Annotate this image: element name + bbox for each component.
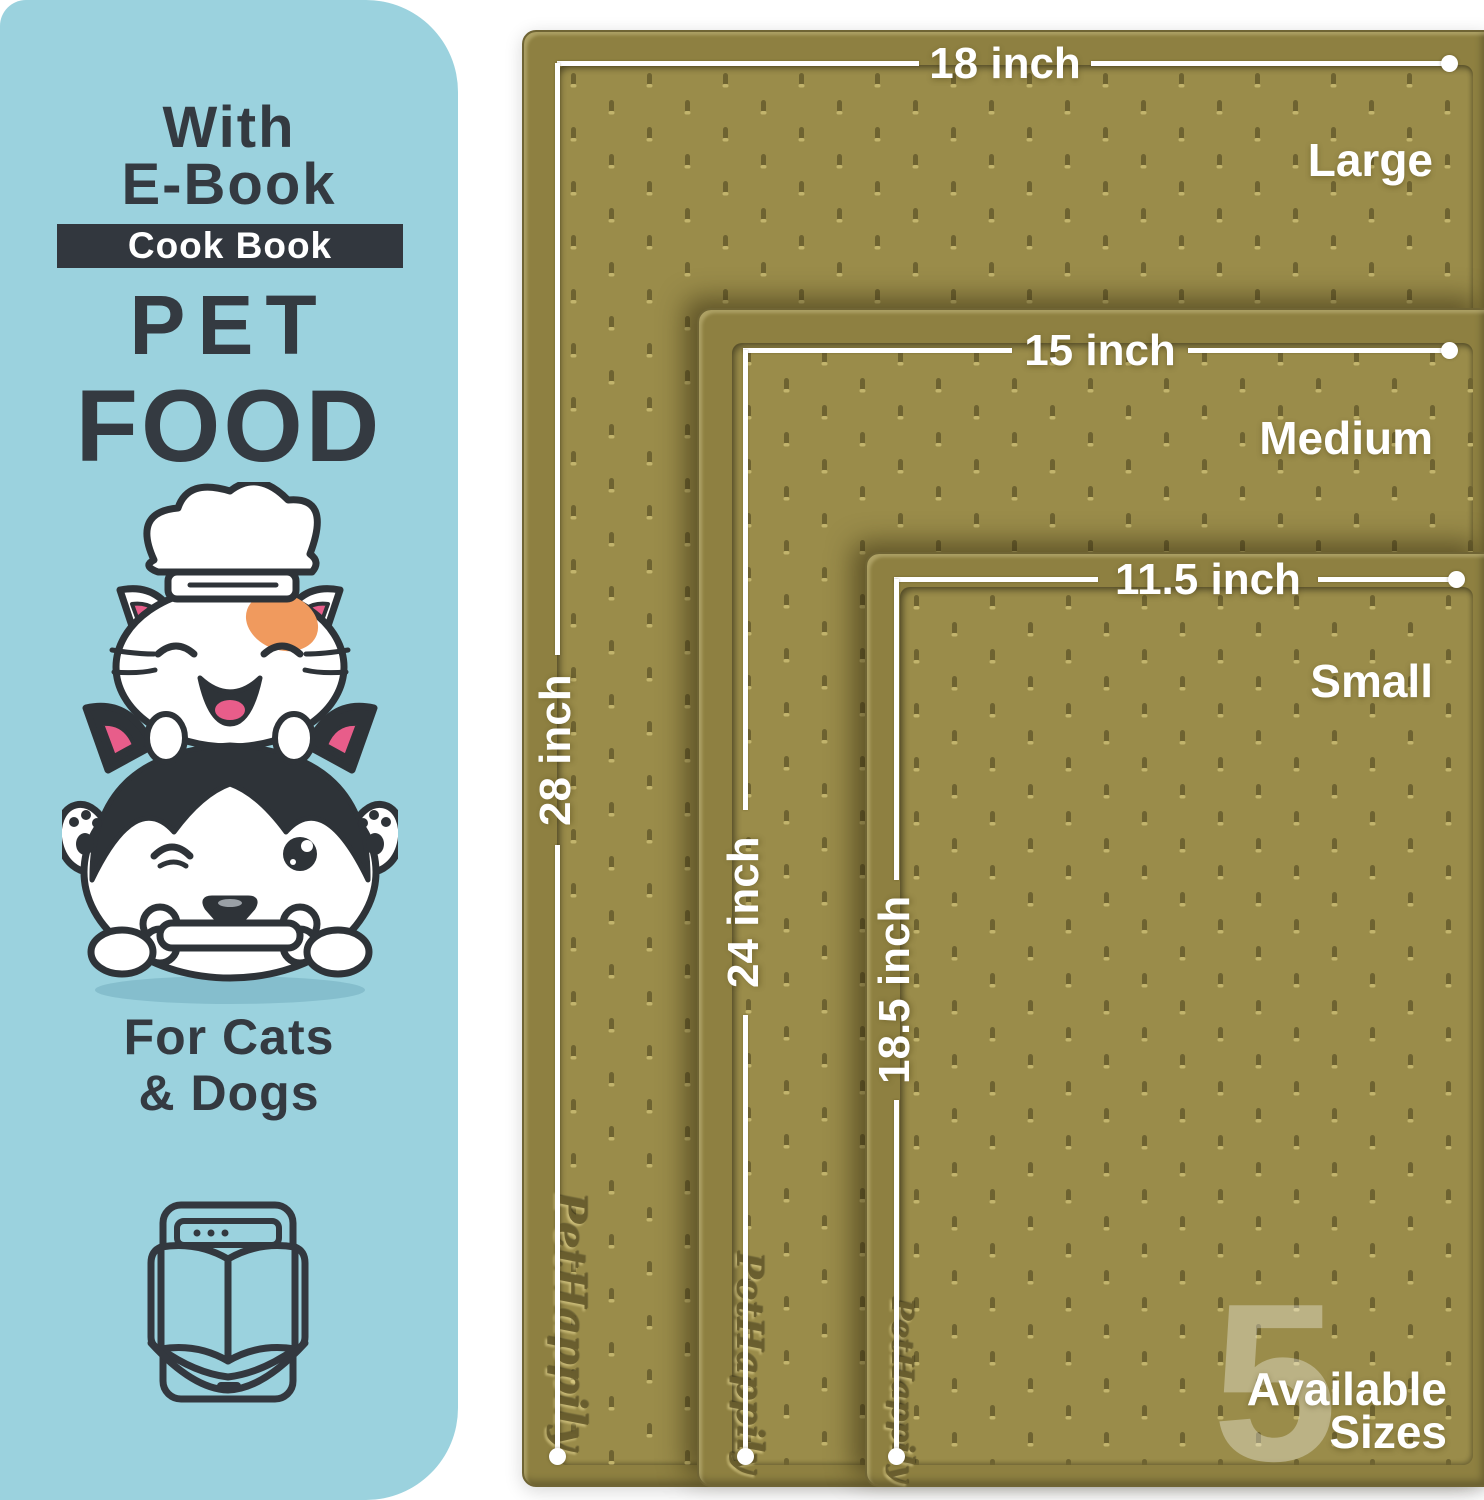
brand-emboss-large: PetHappily	[546, 1192, 595, 1451]
measure-line-medium-width-2	[1188, 348, 1443, 353]
subtitle-line2: & Dogs	[0, 1068, 458, 1118]
cookbook-badge: Cook Book	[57, 224, 403, 268]
label-large-width: 18 inch	[919, 39, 1091, 89]
measure-dot	[888, 1448, 905, 1465]
label-small-height: 18.5 inch	[870, 880, 922, 1100]
measure-dot	[1441, 55, 1458, 72]
ebook-reader-icon	[145, 1201, 311, 1403]
label-large-height: 28 inch	[531, 655, 583, 845]
measure-line-small-width	[894, 577, 1098, 582]
cat-chef-dog-bone-illustration	[62, 482, 398, 1010]
brand-emboss-medium: PetHappily	[728, 1252, 770, 1474]
info-panel: With E-Book Cook Book PET FOOD	[0, 0, 458, 1500]
heading-line2: E-Book	[0, 156, 458, 214]
measure-dot	[737, 1448, 754, 1465]
measure-line-small-height	[894, 579, 899, 880]
sizes-caption-line2: Sizes	[1147, 1405, 1447, 1459]
measure-dot	[549, 1448, 566, 1465]
measure-line-medium-height-2	[743, 1015, 748, 1452]
product-infographic: With E-Book Cook Book PET FOOD	[0, 0, 1484, 1500]
measure-line-small-height-2	[894, 1100, 899, 1452]
size-label-medium: Medium	[1233, 411, 1433, 465]
size-label-small: Small	[1233, 654, 1433, 708]
measure-line-large-height	[555, 63, 560, 655]
title-line1: PET	[0, 283, 458, 367]
size-label-large: Large	[1233, 133, 1433, 187]
measure-dot	[1441, 342, 1458, 359]
measure-line-small-width-2	[1318, 577, 1450, 582]
label-medium-height: 24 inch	[719, 810, 771, 1015]
title-line2: FOOD	[0, 375, 458, 477]
home-button	[217, 1382, 241, 1390]
measure-line-large-width	[557, 61, 919, 66]
browser-dots	[194, 1230, 229, 1237]
subtitle-line1: For Cats	[0, 1012, 458, 1062]
measure-dot	[1448, 571, 1465, 588]
measure-line-large-width-2	[1091, 61, 1443, 66]
label-small-width: 11.5 inch	[1098, 555, 1318, 605]
measure-line-large-height-2	[555, 845, 560, 1452]
heading-line1: With	[0, 99, 458, 157]
measure-line-medium-height	[743, 350, 748, 810]
label-medium-width: 15 inch	[1012, 326, 1188, 376]
measure-line-medium-width	[743, 348, 1012, 353]
